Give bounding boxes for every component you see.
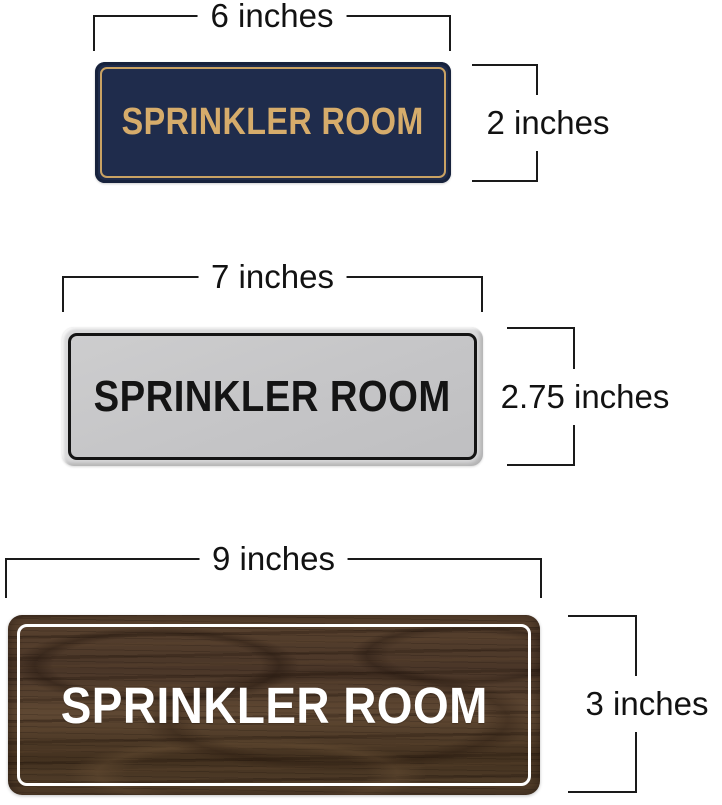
- sign-size-comparison-diagram: 6 inches SPRINKLER ROOM 2 inches 7 inche…: [0, 0, 722, 805]
- dimension-tick: [540, 558, 542, 598]
- dimension-tick: [568, 615, 637, 617]
- dimension-tick: [449, 15, 451, 51]
- height-dimension-2-75in: 2.75 inches: [507, 327, 575, 466]
- height-dimension-label: 2 inches: [479, 95, 618, 151]
- dimension-tick: [568, 791, 637, 793]
- sign-text: SPRINKLER ROOM: [60, 676, 487, 735]
- sign-text: SPRINKLER ROOM: [122, 101, 424, 144]
- height-dimension-label: 3 inches: [578, 676, 717, 732]
- dimension-tick: [472, 180, 538, 182]
- width-dimension-6in: 6 inches: [93, 15, 451, 51]
- dimension-tick: [5, 558, 7, 598]
- dimension-tick: [93, 15, 95, 51]
- width-dimension-9in: 9 inches: [5, 558, 542, 598]
- dimension-tick: [507, 464, 575, 466]
- width-dimension-label: 6 inches: [198, 0, 347, 35]
- dimension-tick: [481, 276, 483, 312]
- width-dimension-label: 7 inches: [198, 258, 347, 296]
- height-dimension-3in: 3 inches: [568, 615, 637, 793]
- height-dimension-label: 2.75 inches: [493, 369, 678, 425]
- dimension-tick: [507, 327, 575, 329]
- dimension-tick: [472, 64, 538, 66]
- width-dimension-label: 9 inches: [199, 540, 348, 578]
- sprinkler-sign-silver: SPRINKLER ROOM: [62, 327, 483, 466]
- width-dimension-7in: 7 inches: [62, 276, 483, 312]
- sprinkler-sign-walnut: SPRINKLER ROOM: [8, 615, 540, 795]
- sign-text: SPRINKLER ROOM: [94, 372, 451, 422]
- sprinkler-sign-navy: SPRINKLER ROOM: [95, 62, 451, 183]
- dimension-tick: [62, 276, 64, 312]
- height-dimension-2in: 2 inches: [472, 64, 538, 182]
